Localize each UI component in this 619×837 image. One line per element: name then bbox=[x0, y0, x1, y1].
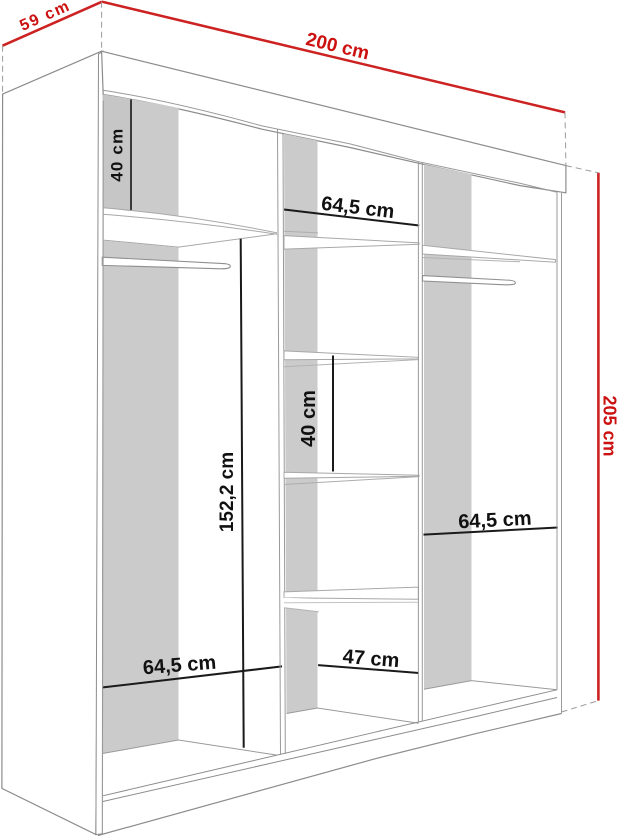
svg-text:47 cm: 47 cm bbox=[342, 646, 400, 672]
svg-text:40 cm: 40 cm bbox=[298, 390, 320, 447]
svg-text:64,5 cm: 64,5 cm bbox=[458, 508, 532, 534]
svg-text:40 cm: 40 cm bbox=[107, 129, 126, 182]
svg-text:152,2 cm: 152,2 cm bbox=[217, 452, 238, 532]
svg-text:205 cm: 205 cm bbox=[599, 395, 619, 456]
